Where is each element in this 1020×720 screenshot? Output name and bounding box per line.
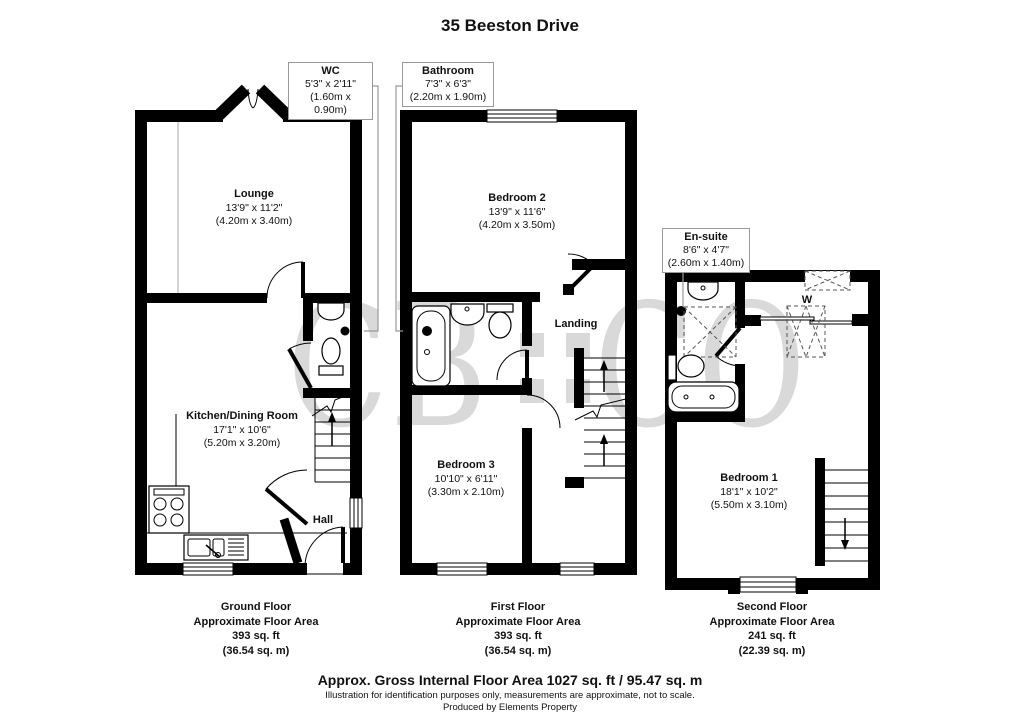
first-floor-plan [400,110,637,575]
callout-ensuite-metric: (2.60m x 1.40m) [667,257,745,270]
second-floor-area-label: Approximate Floor Area [710,615,835,630]
first-floor-area-label: Approximate Floor Area [456,615,581,630]
first-floor-sqm: (36.54 sq. m) [456,644,581,659]
kitchen-metric: (5.20m x 3.20m) [186,437,298,451]
second-floor-sqft: 241 sq. ft [710,629,835,644]
bedroom2-imperial: 13'9" x 11'6" [479,206,555,220]
bedroom1-name: Bedroom 1 [711,472,787,486]
callout-wc: WC 5'3" x 2'11" (1.60m x 0.90m) [288,62,373,120]
callout-wc-name: WC [293,65,368,78]
room-label-wardrobe: W [802,294,812,308]
landing-name: Landing [555,318,598,332]
caption-second-floor: Second Floor Approximate Floor Area 241 … [710,600,835,658]
ground-floor-name: Ground Floor [194,600,319,615]
page-title: 35 Beeston Drive [441,16,579,36]
bedroom3-imperial: 10'10" x 6'11" [428,473,504,487]
callout-ensuite: En-suite 8'6" x 4'7" (2.60m x 1.40m) [662,228,750,273]
room-label-lounge: Lounge 13'9" x 11'2" (4.20m x 3.40m) [216,188,292,229]
second-floor-name: Second Floor [710,600,835,615]
disclaimer-text: Illustration for identification purposes… [325,690,694,702]
callout-bathroom-imperial: 7'3" x 6'3" [407,78,489,91]
first-floor-name: First Floor [456,600,581,615]
caption-ground-floor: Ground Floor Approximate Floor Area 393 … [194,600,319,658]
caption-first-floor: First Floor Approximate Floor Area 393 s… [456,600,581,658]
callout-bathroom-metric: (2.20m x 1.90m) [407,91,489,104]
second-floor-plan [665,270,880,594]
bedroom2-name: Bedroom 2 [479,192,555,206]
first-floor-sqft: 393 sq. ft [456,629,581,644]
bedroom1-metric: (5.50m x 3.10m) [711,499,787,513]
kitchen-name: Kitchen/Dining Room [186,410,298,424]
callout-ensuite-imperial: 8'6" x 4'7" [667,244,745,257]
bedroom3-metric: (3.30m x 2.10m) [428,486,504,500]
callout-wc-metric: (1.60m x 0.90m) [293,91,368,117]
room-label-landing: Landing [555,318,598,332]
wardrobe-name: W [802,294,812,308]
ground-floor-sqft: 393 sq. ft [194,629,319,644]
room-label-hall: Hall [313,514,333,528]
second-floor-sqm: (22.39 sq. m) [710,644,835,659]
bedroom1-imperial: 18'1" x 10'2" [711,486,787,500]
callout-ensuite-name: En-suite [667,231,745,244]
lounge-metric: (4.20m x 3.40m) [216,215,292,229]
bedroom2-metric: (4.20m x 3.50m) [479,219,555,233]
gross-area-text: Approx. Gross Internal Floor Area 1027 s… [318,672,703,688]
callout-bathroom-name: Bathroom [407,65,489,78]
lounge-name: Lounge [216,188,292,202]
kitchen-imperial: 17'1" x 10'6" [186,424,298,438]
callout-bathroom: Bathroom 7'3" x 6'3" (2.20m x 1.90m) [402,62,494,107]
room-label-bedroom1: Bedroom 1 18'1" x 10'2" (5.50m x 3.10m) [711,472,787,513]
room-label-kitchen: Kitchen/Dining Room 17'1" x 10'6" (5.20m… [186,410,298,451]
ground-floor-sqm: (36.54 sq. m) [194,644,319,659]
room-label-bedroom2: Bedroom 2 13'9" x 11'6" (4.20m x 3.50m) [479,192,555,233]
bedroom3-name: Bedroom 3 [428,459,504,473]
callout-wc-imperial: 5'3" x 2'11" [293,78,368,91]
ground-floor-plan [135,89,362,575]
producer-text: Produced by Elements Property [443,702,577,714]
floorplan-page: CB CO [0,0,1020,720]
lounge-imperial: 13'9" x 11'2" [216,202,292,216]
hall-name: Hall [313,514,333,528]
ground-floor-area-label: Approximate Floor Area [194,615,319,630]
room-label-bedroom3: Bedroom 3 10'10" x 6'11" (3.30m x 2.10m) [428,459,504,500]
